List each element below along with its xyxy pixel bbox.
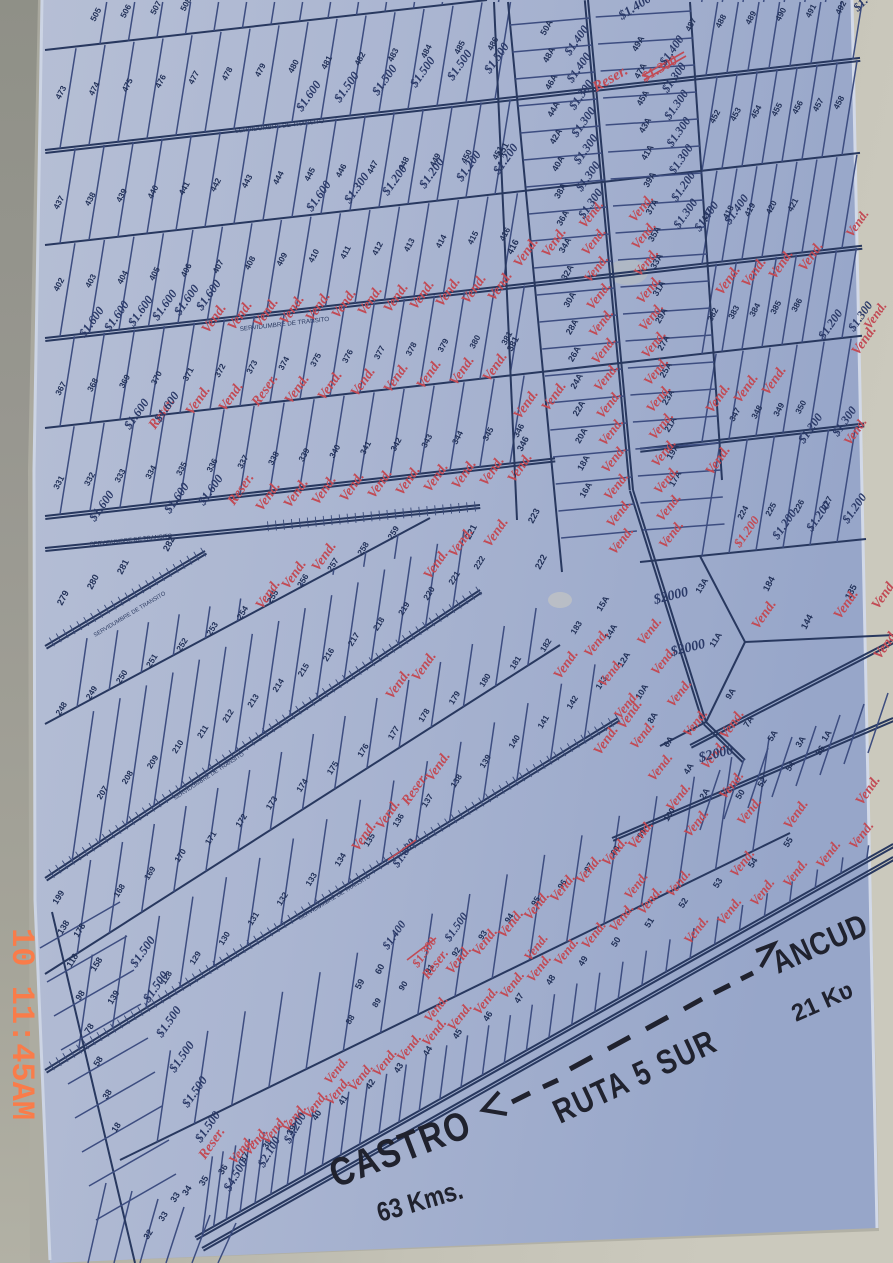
svg-text:10 11:45AM: 10 11:45AM: [3, 928, 40, 1120]
